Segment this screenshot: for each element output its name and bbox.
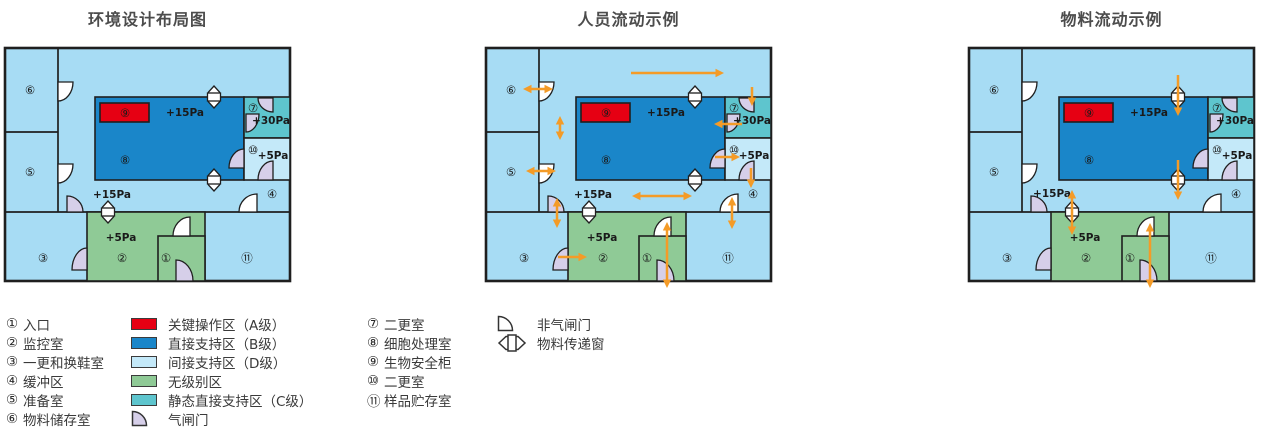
room-number: ②: [117, 251, 127, 265]
legend-item: ⑪样品贮存室: [367, 390, 452, 409]
legend-rooms-column-2: ⑦二更室⑧细胞处理室⑨生物安全柜⑩二更室⑪样品贮存室: [367, 314, 452, 409]
legend-key: [131, 337, 158, 349]
legend-room-name: 二更室: [384, 314, 425, 334]
legend-room-number: ⑦: [367, 316, 384, 332]
room-number: ③: [1002, 251, 1012, 265]
legend-zone-name: 气闸门: [168, 409, 209, 429]
legend-room-name: 准备室: [23, 390, 64, 410]
legend-item: ⑧细胞处理室: [367, 333, 452, 352]
legend-rooms-column-1: ①入口②监控室③一更和换鞋室④缓冲区⑤准备室⑥物料储存室: [6, 314, 104, 428]
room-number: ⑥: [25, 83, 35, 97]
room-number: ⑪: [241, 251, 253, 265]
pressure-label: +5Pa: [1222, 150, 1253, 162]
legend-item: 静态直接支持区（C级）: [131, 390, 312, 409]
pass-window-icon: [497, 334, 527, 352]
legend-room-number: ⑨: [367, 354, 384, 370]
room-number: ⑩: [248, 143, 258, 157]
pressure-label: +15Pa: [93, 189, 131, 201]
room-number: ⑪: [722, 251, 734, 265]
legend-item: 气闸门: [131, 409, 312, 428]
legend-room-number: ⑥: [6, 411, 23, 427]
room-number: ⑤: [25, 165, 35, 179]
plain-door-icon: [497, 315, 514, 332]
legend-key: [131, 318, 158, 330]
pressure-label: +5Pa: [106, 232, 137, 244]
room-number: ②: [598, 251, 608, 265]
room-number: ③: [38, 251, 48, 265]
legend-zone-name: 关键操作区（A级）: [168, 314, 285, 334]
page: 环境设计布局图 人员流动示例 物料流动示例 ⑥⑤③②①⑪⑧⑨⑦⑩④+15Pa+3…: [0, 0, 1264, 437]
room-number: ①: [1125, 251, 1135, 265]
legend-room-number: ⑪: [367, 390, 384, 410]
legend-room-number: ⑤: [6, 392, 23, 408]
zone-color-swatch: [131, 375, 157, 387]
legend-key: [131, 356, 158, 368]
legend-item: 关键操作区（A级）: [131, 314, 312, 333]
legend-room-number: ①: [6, 316, 23, 332]
room-number: ④: [267, 187, 277, 201]
room-number: ②: [1081, 251, 1091, 265]
legend-room-number: ④: [6, 373, 23, 389]
legend-item: ⑩二更室: [367, 371, 452, 390]
room-number: ⑦: [729, 101, 739, 115]
legend-item: 直接支持区（B级）: [131, 333, 312, 352]
legend-key: [497, 315, 531, 332]
legend-key: [131, 394, 158, 406]
legend-item: ③一更和换鞋室: [6, 352, 104, 371]
pressure-label: +15Pa: [1033, 188, 1071, 200]
legend-key: [131, 410, 158, 427]
room-number: ⑪: [1205, 251, 1217, 265]
pressure-label: +15Pa: [166, 107, 204, 119]
room-number: ⑨: [601, 106, 611, 120]
legend-item: 间接支持区（D级）: [131, 352, 312, 371]
legend-key: [131, 375, 158, 387]
legend-item: ⑤准备室: [6, 390, 104, 409]
room-number: ⑥: [989, 83, 999, 97]
pressure-label: +5Pa: [258, 150, 289, 162]
floorplan-layout-diagram: ⑥⑤③②①⑪⑧⑨⑦⑩④+15Pa+30Pa+5Pa+15Pa+5Pa: [5, 48, 290, 295]
legend-room-name: 监控室: [23, 333, 64, 353]
room-number: ①: [161, 251, 171, 265]
diagram-title-material: 物料流动示例: [969, 6, 1254, 30]
legend-item: ①入口: [6, 314, 104, 333]
legend-item: ⑨生物安全柜: [367, 352, 452, 371]
legend: ①入口②监控室③一更和换鞋室④缓冲区⑤准备室⑥物料储存室 关键操作区（A级）直接…: [0, 312, 700, 437]
pressure-label: +15Pa: [1130, 107, 1168, 119]
legend-room-number: ⑧: [367, 335, 384, 351]
pressure-label: +5Pa: [587, 232, 618, 244]
legend-item: 非气闸门: [497, 314, 605, 333]
legend-item: 无级别区: [131, 371, 312, 390]
legend-key: [497, 334, 531, 352]
legend-room-number: ⑩: [367, 373, 384, 389]
pressure-label: +5Pa: [739, 150, 770, 162]
legend-zone-name: 静态直接支持区（C级）: [168, 390, 312, 410]
zone-color-swatch: [131, 337, 157, 349]
room-number: ④: [748, 187, 758, 201]
legend-item: ⑦二更室: [367, 314, 452, 333]
legend-item: 物料传递窗: [497, 333, 605, 352]
legend-room-name: 入口: [23, 314, 50, 334]
diagram-title-layout: 环境设计布局图: [5, 6, 290, 30]
legend-item: ②监控室: [6, 333, 104, 352]
legend-room-name: 二更室: [384, 371, 425, 391]
pressure-label: +30Pa: [1216, 115, 1254, 127]
floorplan-material-flow: ⑥⑤③②①⑪⑧⑨⑦⑩④+15Pa+30Pa+5Pa+15Pa+5Pa: [969, 48, 1254, 295]
airlock-door-icon: [131, 410, 148, 427]
legend-symbol-name: 物料传递窗: [537, 333, 605, 353]
legend-room-name: 细胞处理室: [384, 333, 452, 353]
legend-room-name: 物料储存室: [23, 409, 91, 429]
diagram-title-personnel: 人员流动示例: [486, 6, 771, 30]
legend-zones-column: 关键操作区（A级）直接支持区（B级）间接支持区（D级）无级别区静态直接支持区（C…: [131, 314, 312, 428]
room-number: ④: [1231, 187, 1241, 201]
legend-room-name: 缓冲区: [23, 371, 64, 391]
legend-room-name: 生物安全柜: [384, 352, 452, 372]
legend-item: ⑥物料储存室: [6, 409, 104, 428]
legend-room-name: 一更和换鞋室: [23, 352, 104, 372]
room-number: ⑦: [248, 101, 258, 115]
legend-zone-name: 直接支持区（B级）: [168, 333, 285, 353]
room-number: ⑧: [601, 153, 611, 167]
room-number: ⑨: [1084, 106, 1094, 120]
room-number: ③: [519, 251, 529, 265]
pressure-label: +5Pa: [1070, 232, 1101, 244]
zone-color-swatch: [131, 318, 157, 330]
legend-room-number: ②: [6, 335, 23, 351]
room-number: ①: [642, 251, 652, 265]
room-number: ⑤: [506, 165, 516, 179]
legend-item: ④缓冲区: [6, 371, 104, 390]
room-number: ⑩: [1212, 143, 1222, 157]
pressure-label: +15Pa: [647, 107, 685, 119]
legend-symbols-column: 非气闸门物料传递窗: [497, 314, 605, 352]
room-number: ⑥: [506, 83, 516, 97]
pressure-label: +30Pa: [252, 115, 290, 127]
room-number: ⑦: [1212, 101, 1222, 115]
floorplan-personnel-flow: ⑥⑤③②①⑪⑧⑨⑦⑩④+15Pa+30Pa+5Pa+15Pa+5Pa: [486, 48, 771, 295]
legend-room-name: 样品贮存室: [384, 390, 452, 410]
zone-color-swatch: [131, 394, 157, 406]
legend-symbol-name: 非气闸门: [537, 314, 591, 334]
legend-zone-name: 无级别区: [168, 371, 222, 391]
legend-room-number: ③: [6, 354, 23, 370]
room-number: ⑤: [989, 165, 999, 179]
pressure-label: +15Pa: [574, 189, 612, 201]
room-number: ⑨: [120, 106, 130, 120]
zone-color-swatch: [131, 356, 157, 368]
room-number: ⑧: [1084, 153, 1094, 167]
room-number: ⑧: [120, 153, 130, 167]
legend-zone-name: 间接支持区（D级）: [168, 352, 286, 372]
